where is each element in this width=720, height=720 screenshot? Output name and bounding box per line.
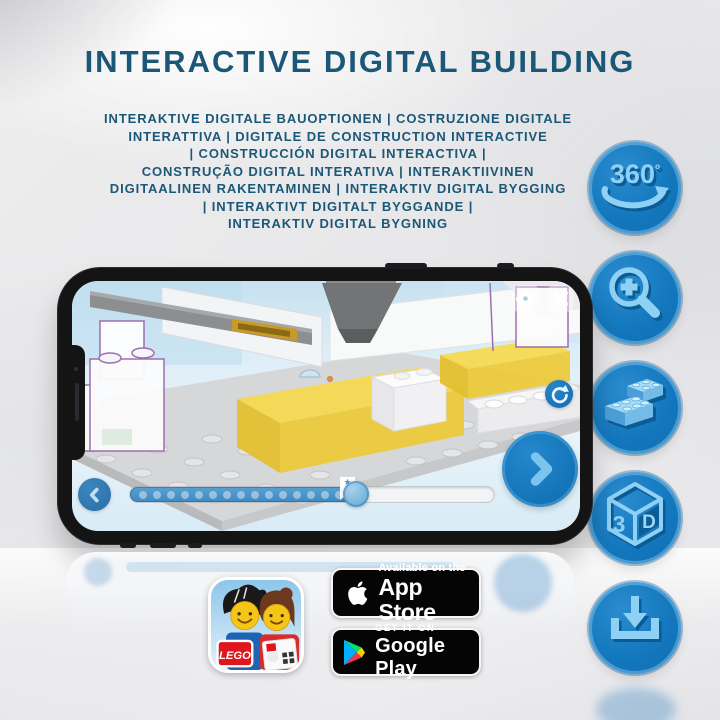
lego-logo-text: LEGO	[219, 650, 251, 662]
close-icon	[547, 285, 574, 312]
lego-app-icon[interactable]: LEGO	[208, 577, 304, 673]
3d-view-icon: 3 D	[589, 472, 681, 564]
subtitle-line: | INTERAKTIVT DIGITALT BYGGANDE |	[0, 198, 676, 216]
settings-button[interactable]	[512, 285, 539, 312]
svg-text:3: 3	[613, 511, 626, 537]
close-button[interactable]	[547, 285, 574, 312]
app-store-tagline: Available on the	[378, 562, 479, 575]
phone-notch	[72, 345, 85, 460]
subtitle-line: INTERAKTIV DIGITAL BYGNING	[0, 215, 676, 233]
feature-icon-column: 360º 360º	[589, 142, 681, 692]
front-camera	[74, 367, 78, 371]
rotate-view-button[interactable]	[545, 380, 573, 408]
rotate-icon	[548, 383, 570, 405]
360-rotation-glyph: 360º 360º	[589, 142, 681, 234]
brick-options-glyph	[589, 362, 681, 454]
google-play-badge[interactable]: GET IT ON Google Play	[331, 628, 481, 676]
subtitle-line: DIGITAALINEN RAKENTAMINEN | INTERAKTIV D…	[0, 180, 676, 198]
build-progress-fill	[130, 487, 356, 502]
build-progress-bar[interactable]: ★	[130, 487, 494, 502]
white-brick-middle	[372, 369, 446, 432]
chevron-right-icon	[511, 440, 569, 498]
phone-reflection	[66, 552, 574, 640]
3d-view-glyph: 3 D	[589, 472, 681, 564]
google-play-label: Google Play	[375, 635, 479, 681]
subtitle-line: INTERATTIVA | DIGITALE DE CONSTRUCTION I…	[0, 128, 676, 146]
app-store-badge[interactable]: Available on the App Store	[331, 568, 481, 618]
phone-mockup: ★	[58, 268, 592, 544]
subtitle-block: INTERAKTIVE DIGITALE BAUOPTIONEN | COSTR…	[0, 110, 676, 233]
zoom-in-glyph	[589, 252, 681, 344]
svg-text:360º: 360º	[610, 159, 660, 189]
gear-icon	[512, 285, 539, 312]
phone-edge-button	[188, 543, 202, 548]
chevron-left-icon	[83, 483, 107, 507]
360-rotation-icon: 360º 360º	[589, 142, 681, 234]
apple-icon	[346, 578, 369, 608]
google-play-icon	[344, 639, 366, 666]
promo-banner: INTERACTIVE DIGITAL BUILDING INTERAKTIVE…	[0, 0, 720, 720]
previous-step-button[interactable]	[78, 478, 111, 511]
download-icon	[589, 582, 681, 674]
zoom-in-icon	[589, 252, 681, 344]
progress-slider-handle[interactable]	[343, 481, 369, 507]
subtitle-line: | CONSTRUCCIÓN DIGITAL INTERACTIVA |	[0, 145, 676, 163]
lego-app-illustration: LEGO	[211, 580, 301, 670]
phone-edge-button	[150, 543, 176, 548]
phone-volume-button	[385, 263, 427, 269]
download-glyph	[589, 582, 681, 674]
svg-text:D: D	[642, 512, 656, 533]
page-title: INTERACTIVE DIGITAL BUILDING	[0, 44, 720, 80]
phone-screen: ★	[72, 281, 580, 531]
google-play-tagline: GET IT ON	[375, 623, 479, 635]
subtitle-line: CONSTRUÇÃO DIGITAL INTERATIVA | INTERAKT…	[0, 163, 676, 181]
next-step-button[interactable]	[502, 431, 578, 507]
subtitle-line: INTERAKTIVE DIGITALE BAUOPTIONEN | COSTR…	[0, 110, 676, 128]
speaker-grille	[75, 383, 79, 421]
brick-options-icon	[589, 362, 681, 454]
phone-power-button	[497, 263, 514, 269]
phone-mute-switch	[120, 543, 136, 548]
app-store-label: App Store	[378, 575, 479, 625]
